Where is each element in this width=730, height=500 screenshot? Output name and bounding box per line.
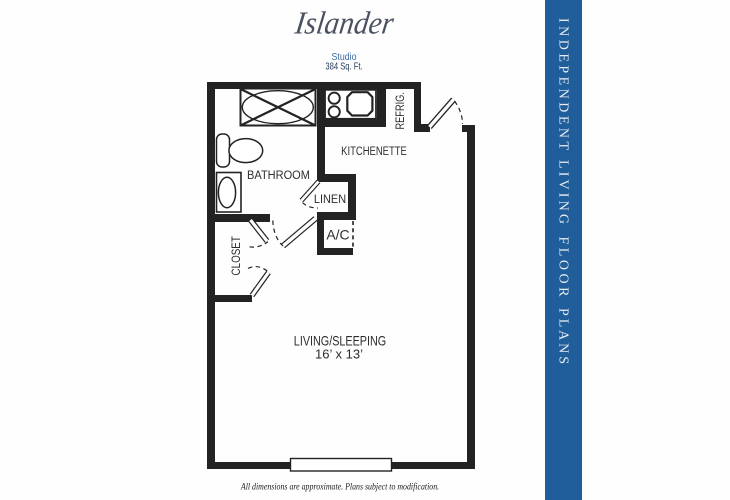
svg-text:BATHROOM: BATHROOM (247, 170, 310, 182)
svg-text:A/C: A/C (326, 227, 349, 243)
svg-text:Islander: Islander (292, 5, 397, 41)
svg-text:16’ x 13’: 16’ x 13’ (315, 347, 363, 362)
svg-text:REFRIG.: REFRIG. (394, 92, 407, 129)
svg-text:384 Sq. Ft.: 384 Sq. Ft. (325, 60, 362, 71)
svg-text:KITCHENETTE: KITCHENETTE (341, 145, 407, 158)
svg-text:LINEN: LINEN (314, 193, 346, 206)
svg-text:All dimensions are approximate: All dimensions are approximate. Plans su… (240, 481, 439, 492)
svg-text:CLOSET: CLOSET (230, 236, 243, 276)
